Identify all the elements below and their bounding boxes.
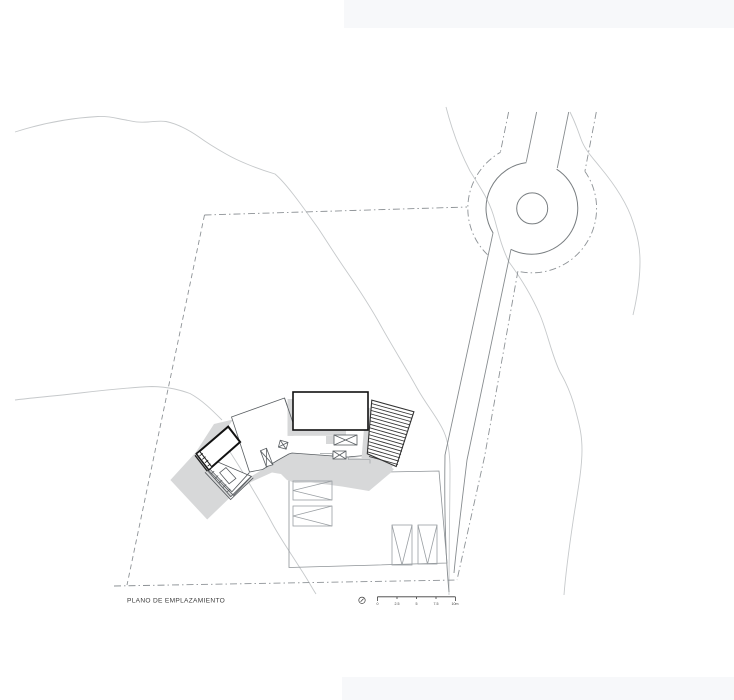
svg-text:0: 0 [377, 602, 379, 606]
svg-text:PLANO DE EMPLAZAMIENTO: PLANO DE EMPLAZAMIENTO [127, 598, 225, 605]
svg-text:5: 5 [416, 602, 418, 606]
svg-text:7.5: 7.5 [434, 602, 439, 606]
svg-text:10m: 10m [452, 602, 459, 606]
svg-text:2.5: 2.5 [395, 602, 400, 606]
